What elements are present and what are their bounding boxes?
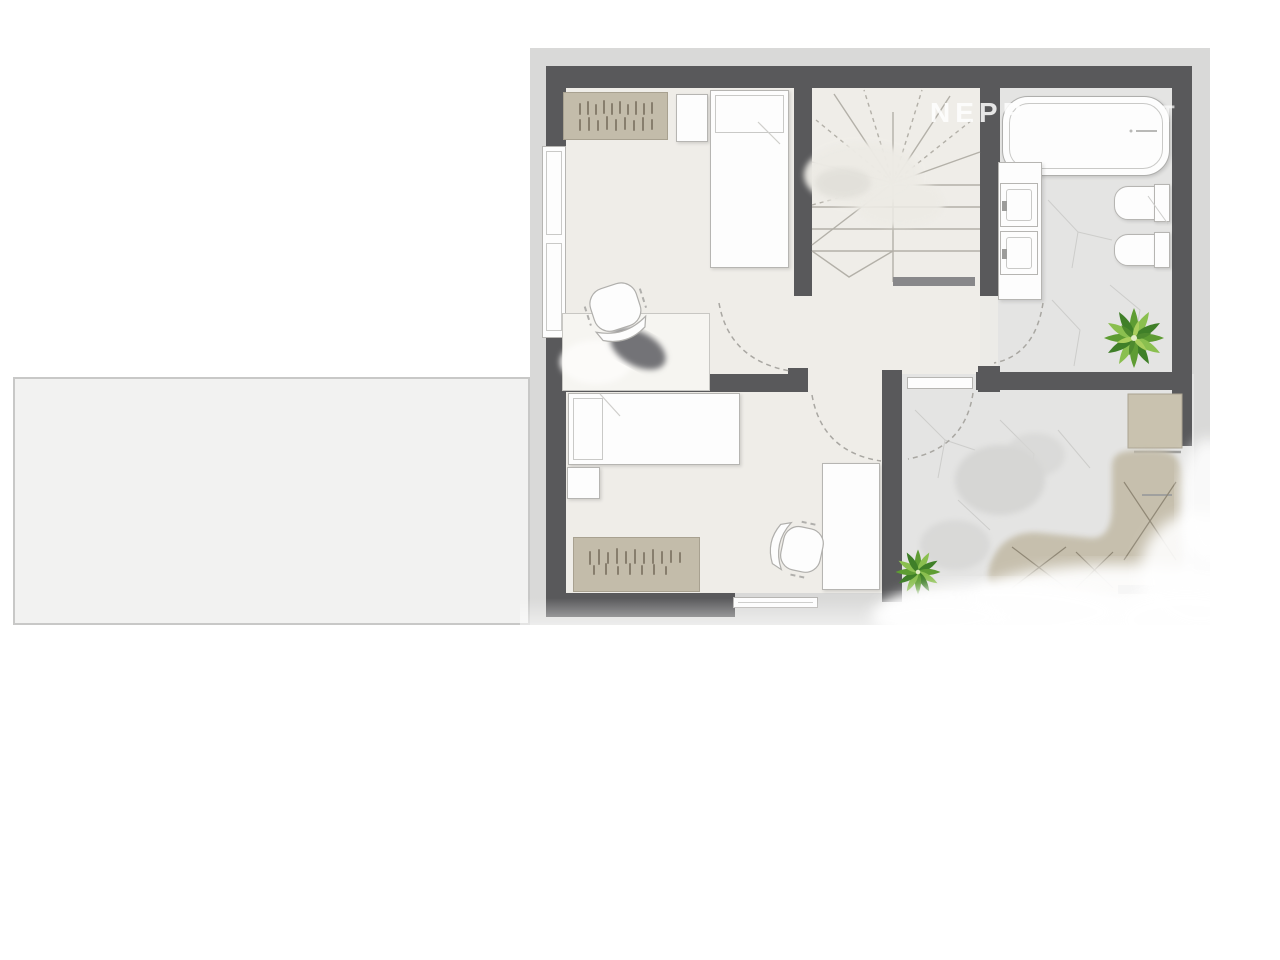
sideboard-bottom-room [573, 537, 700, 592]
desk-bottom-room [822, 463, 880, 590]
window-left [542, 146, 566, 338]
nightstand-bottom-room [567, 467, 600, 499]
landing-door-leaf [907, 377, 973, 389]
hall-lower-floor [794, 296, 980, 374]
wall-stair-left [794, 88, 812, 296]
floorplan-canvas: NEPP T [0, 0, 1280, 960]
toilet [1114, 186, 1158, 220]
nightstand-top-room [676, 94, 708, 142]
desk-top-room [562, 313, 710, 391]
wall-bath-bottom [976, 372, 1190, 390]
bidet-tank [1154, 232, 1170, 268]
roof-slab [13, 377, 530, 625]
wall-top [546, 66, 1192, 88]
bath-door-threshold [980, 296, 1000, 374]
window-bottom [733, 597, 818, 608]
sink-1 [1000, 183, 1038, 227]
bed-top-room [710, 90, 789, 268]
door-opening-mid [808, 374, 882, 392]
toilet-tank [1154, 184, 1170, 222]
wall-bath-left [980, 88, 1000, 296]
landing-floor [902, 374, 1194, 605]
wall-mid-stub [788, 368, 808, 392]
sink-2 [1000, 231, 1038, 275]
sideboard-top-room [563, 92, 668, 140]
bed-bottom-room [568, 393, 740, 465]
bidet [1114, 234, 1158, 266]
wall-mid-vertical [882, 370, 902, 602]
wall-bottom [546, 593, 735, 617]
